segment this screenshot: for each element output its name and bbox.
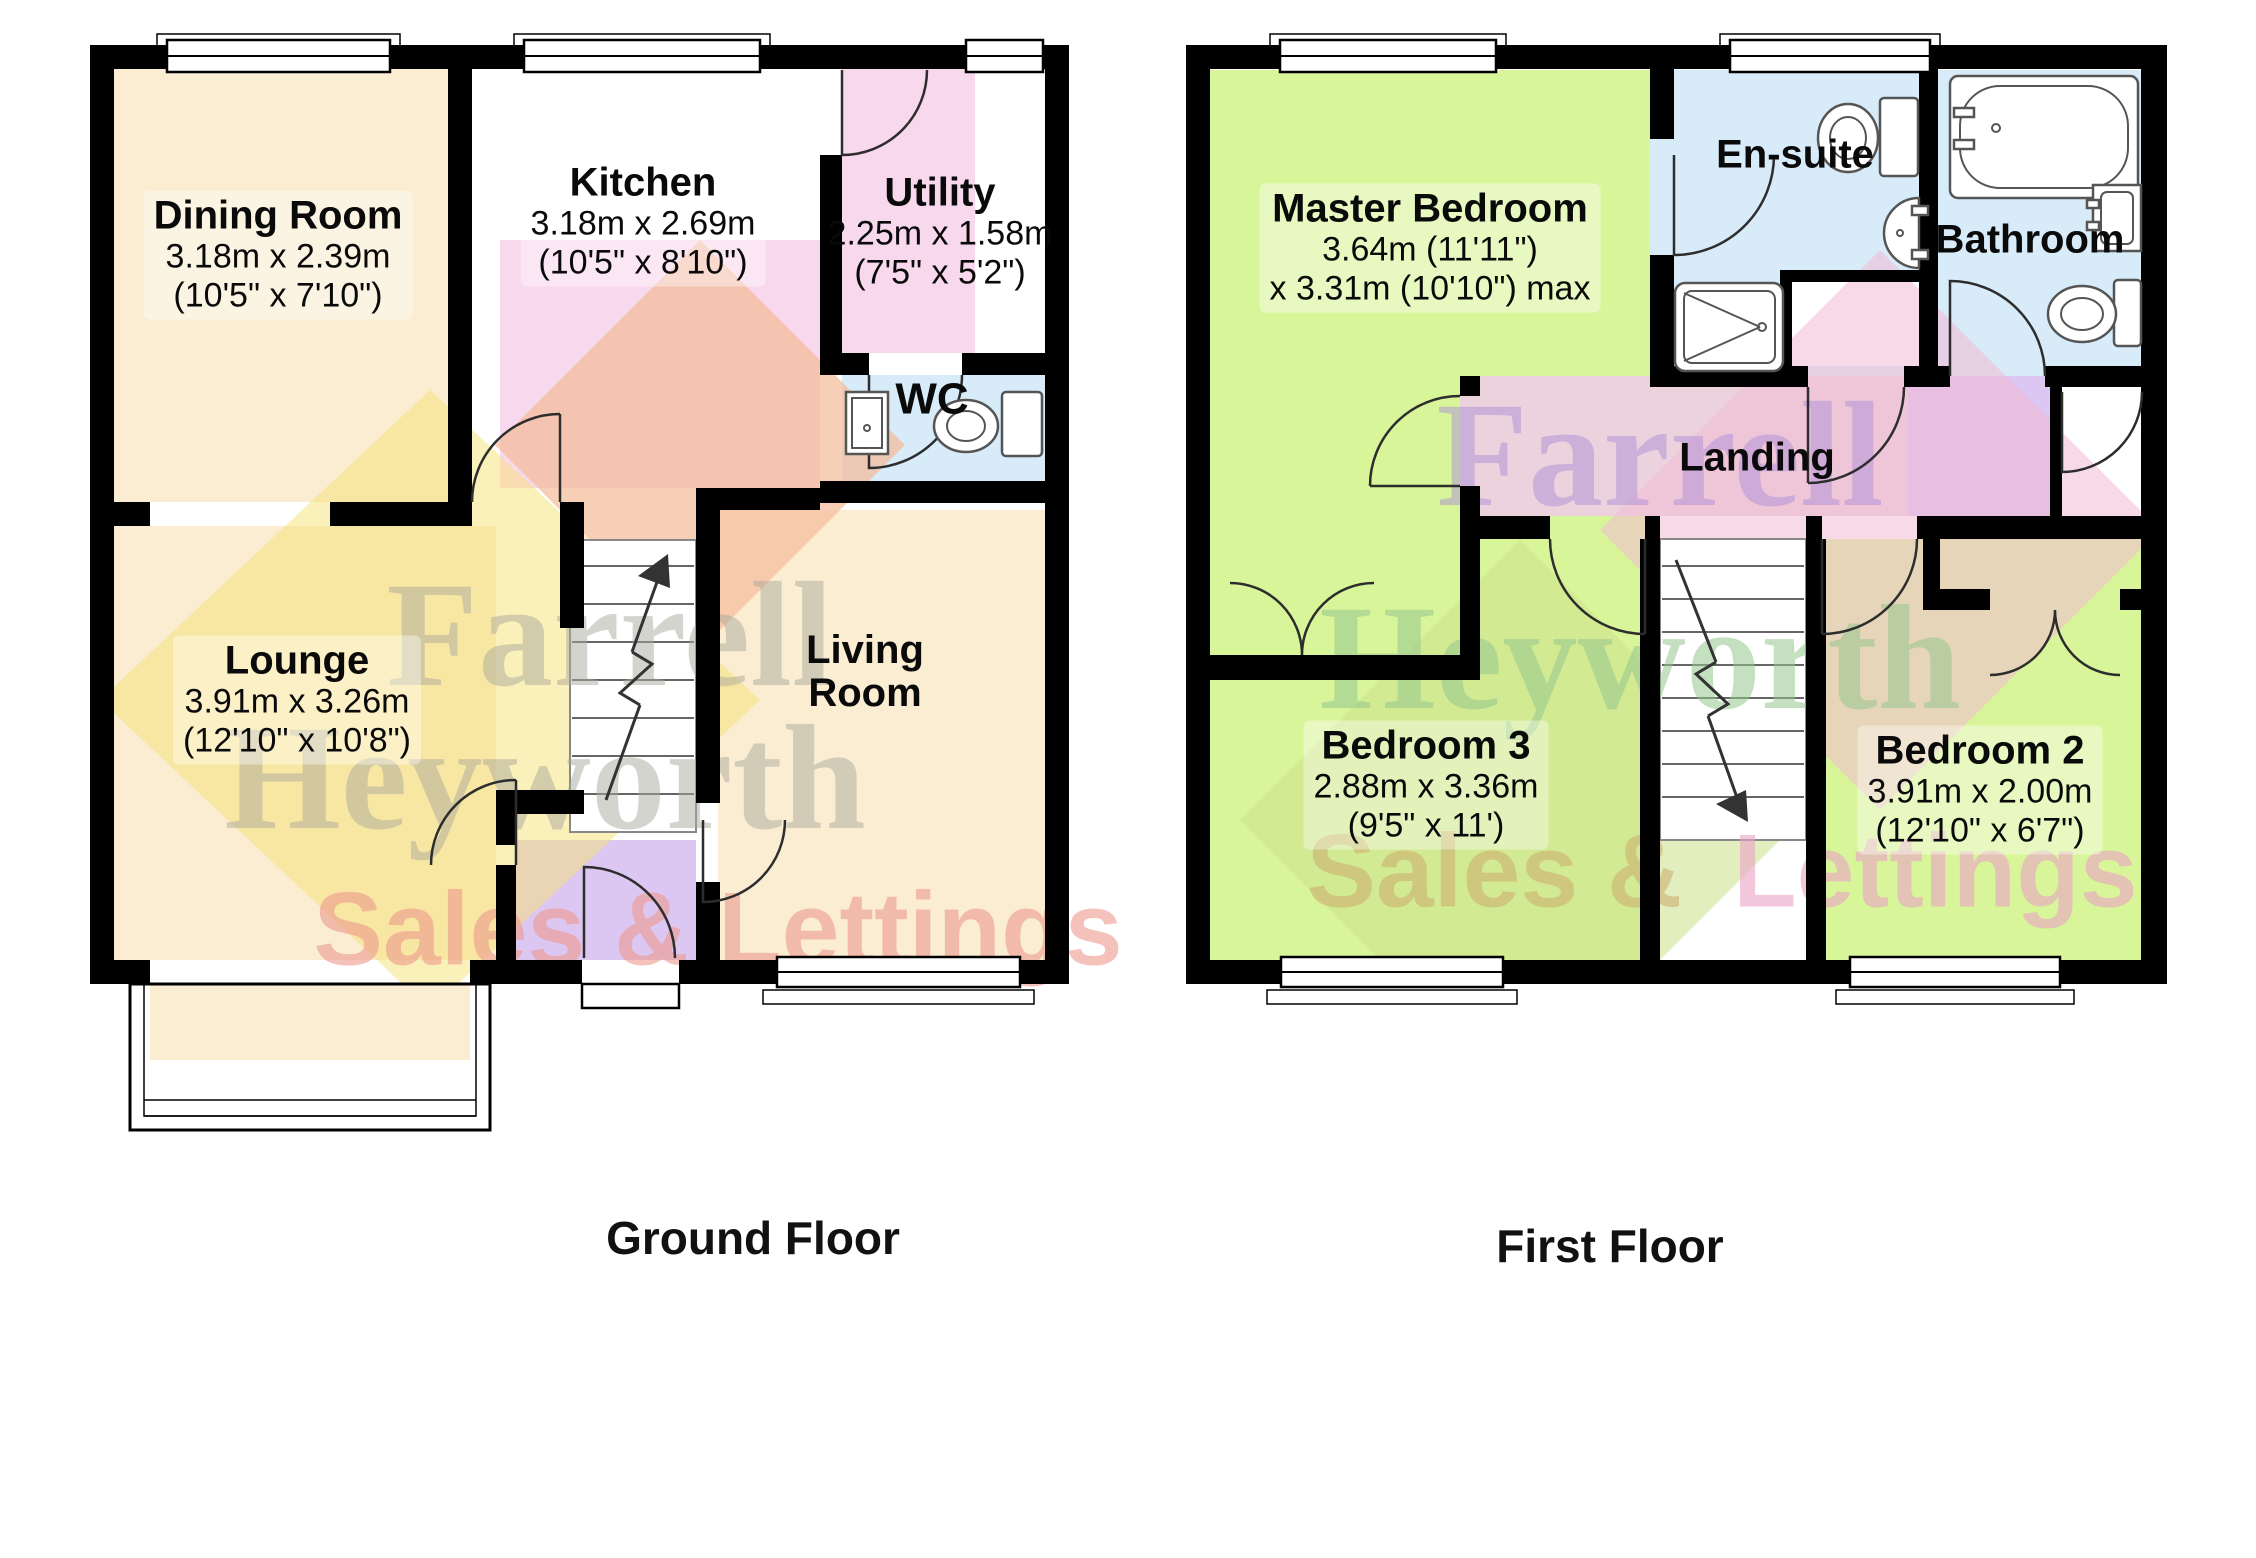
wc-label: WC [895,375,968,422]
bathroom-toilet-icon [2048,280,2141,346]
bedroom3-dims-imperial: (9'5" x 11') [1314,806,1539,845]
landing-name: Landing [1679,437,1835,480]
bedroom2-dims-imperial: (12'10" x 6'7") [1868,811,2093,850]
bedroom2-window-icon [1836,957,2074,1004]
bathroom-label: Bathroom [1936,219,2125,262]
master-bedroom-dims-line1: 3.64m (11'11") [1270,230,1591,269]
ensuite-label: En-suite [1716,134,1874,177]
floorplan-canvas: Farrell Heyworth Sales & Lettings Farrel… [0,0,2256,1558]
landing-label: Landing [1679,437,1835,480]
bathtub-icon [1950,76,2138,198]
bedroom2-wardrobe-doors-arc [1990,610,2120,675]
wc-name: WC [895,375,968,422]
kitchen-window-icon [514,34,770,72]
bedroom3-door-arc [1550,539,1645,634]
ground-floor-title: Ground Floor [606,1211,900,1265]
dining-window-icon [157,34,400,72]
front-door-arc [584,867,675,958]
ensuite-window-icon [1720,34,1940,72]
bedroom2-label: Bedroom 2 3.91m x 2.00m (12'10" x 6'7") [1858,726,2103,855]
wc-sink-icon [846,392,888,454]
kitchen-dims-imperial: (10'5" x 8'10") [531,243,756,282]
lounge-label: Lounge 3.91m x 3.26m (12'10" x 10'8") [173,636,421,765]
dining-kitchen-door-arc [472,414,560,502]
lounge-name: Lounge [183,640,411,683]
master-window-icon [1270,34,1506,72]
bedroom3-window-icon [1267,957,1517,1004]
first-stairs-arrow [1676,560,1748,822]
kitchen-label: Kitchen 3.18m x 2.69m (10'5" x 8'10") [521,158,766,287]
utility-label: Utility 2.25m x 1.58m (7'5" x 5'2") [818,168,1063,297]
kitchen-name: Kitchen [531,162,756,205]
kitchen-dims-metric: 3.18m x 2.69m [531,204,756,243]
lounge-bay-window-icon [130,984,490,1130]
master-bedroom-name: Master Bedroom [1270,188,1591,231]
utility-name: Utility [828,172,1053,215]
ground-stairs-arrow [606,554,670,800]
first-floor-title: First Floor [1496,1219,1723,1273]
ensuite-name: En-suite [1716,134,1874,177]
dining-room-dims-metric: 3.18m x 2.39m [154,237,403,276]
bathroom-name: Bathroom [1936,219,2125,262]
master-bedroom-dims-line2: x 3.31m (10'10") max [1270,269,1591,308]
dining-room-dims-imperial: (10'5" x 7'10") [154,276,403,315]
bedroom3-dims-metric: 2.88m x 3.36m [1314,767,1539,806]
utility-door-arc [842,70,927,155]
airing-cupboard-door-arc [2062,392,2142,472]
bedroom2-dims-metric: 3.91m x 2.00m [1868,772,2093,811]
master-wardrobe-doors-arc [1230,583,1374,655]
bedroom2-name: Bedroom 2 [1868,730,2093,773]
shower-icon [1675,283,1783,371]
front-door-threshold [582,984,679,1008]
utility-dims-metric: 2.25m x 1.58m [828,214,1053,253]
master-door-arc [1370,396,1460,486]
lounge-dims-metric: 3.91m x 3.26m [183,682,411,721]
master-bedroom-label: Master Bedroom 3.64m (11'11") x 3.31m (1… [1260,184,1601,313]
lounge-dims-imperial: (12'10" x 10'8") [183,721,411,760]
bathroom-door-arc [1950,281,2045,376]
bedroom3-name: Bedroom 3 [1314,725,1539,768]
bedroom2-door-arc [1822,539,1917,634]
dining-room-label: Dining Room 3.18m x 2.39m (10'5" x 7'10"… [144,191,413,320]
utility-dims-imperial: (7'5" x 5'2") [828,253,1053,292]
living-room-window-icon [763,957,1034,1004]
utility-window-icon [966,40,1043,72]
bathroom-fixtures [1950,76,2141,346]
dining-room-name: Dining Room [154,195,403,238]
living-room-label: Living Room [735,625,995,719]
bedroom3-label: Bedroom 3 2.88m x 3.36m (9'5" x 11') [1304,721,1549,850]
living-room-name: Living Room [745,629,985,715]
